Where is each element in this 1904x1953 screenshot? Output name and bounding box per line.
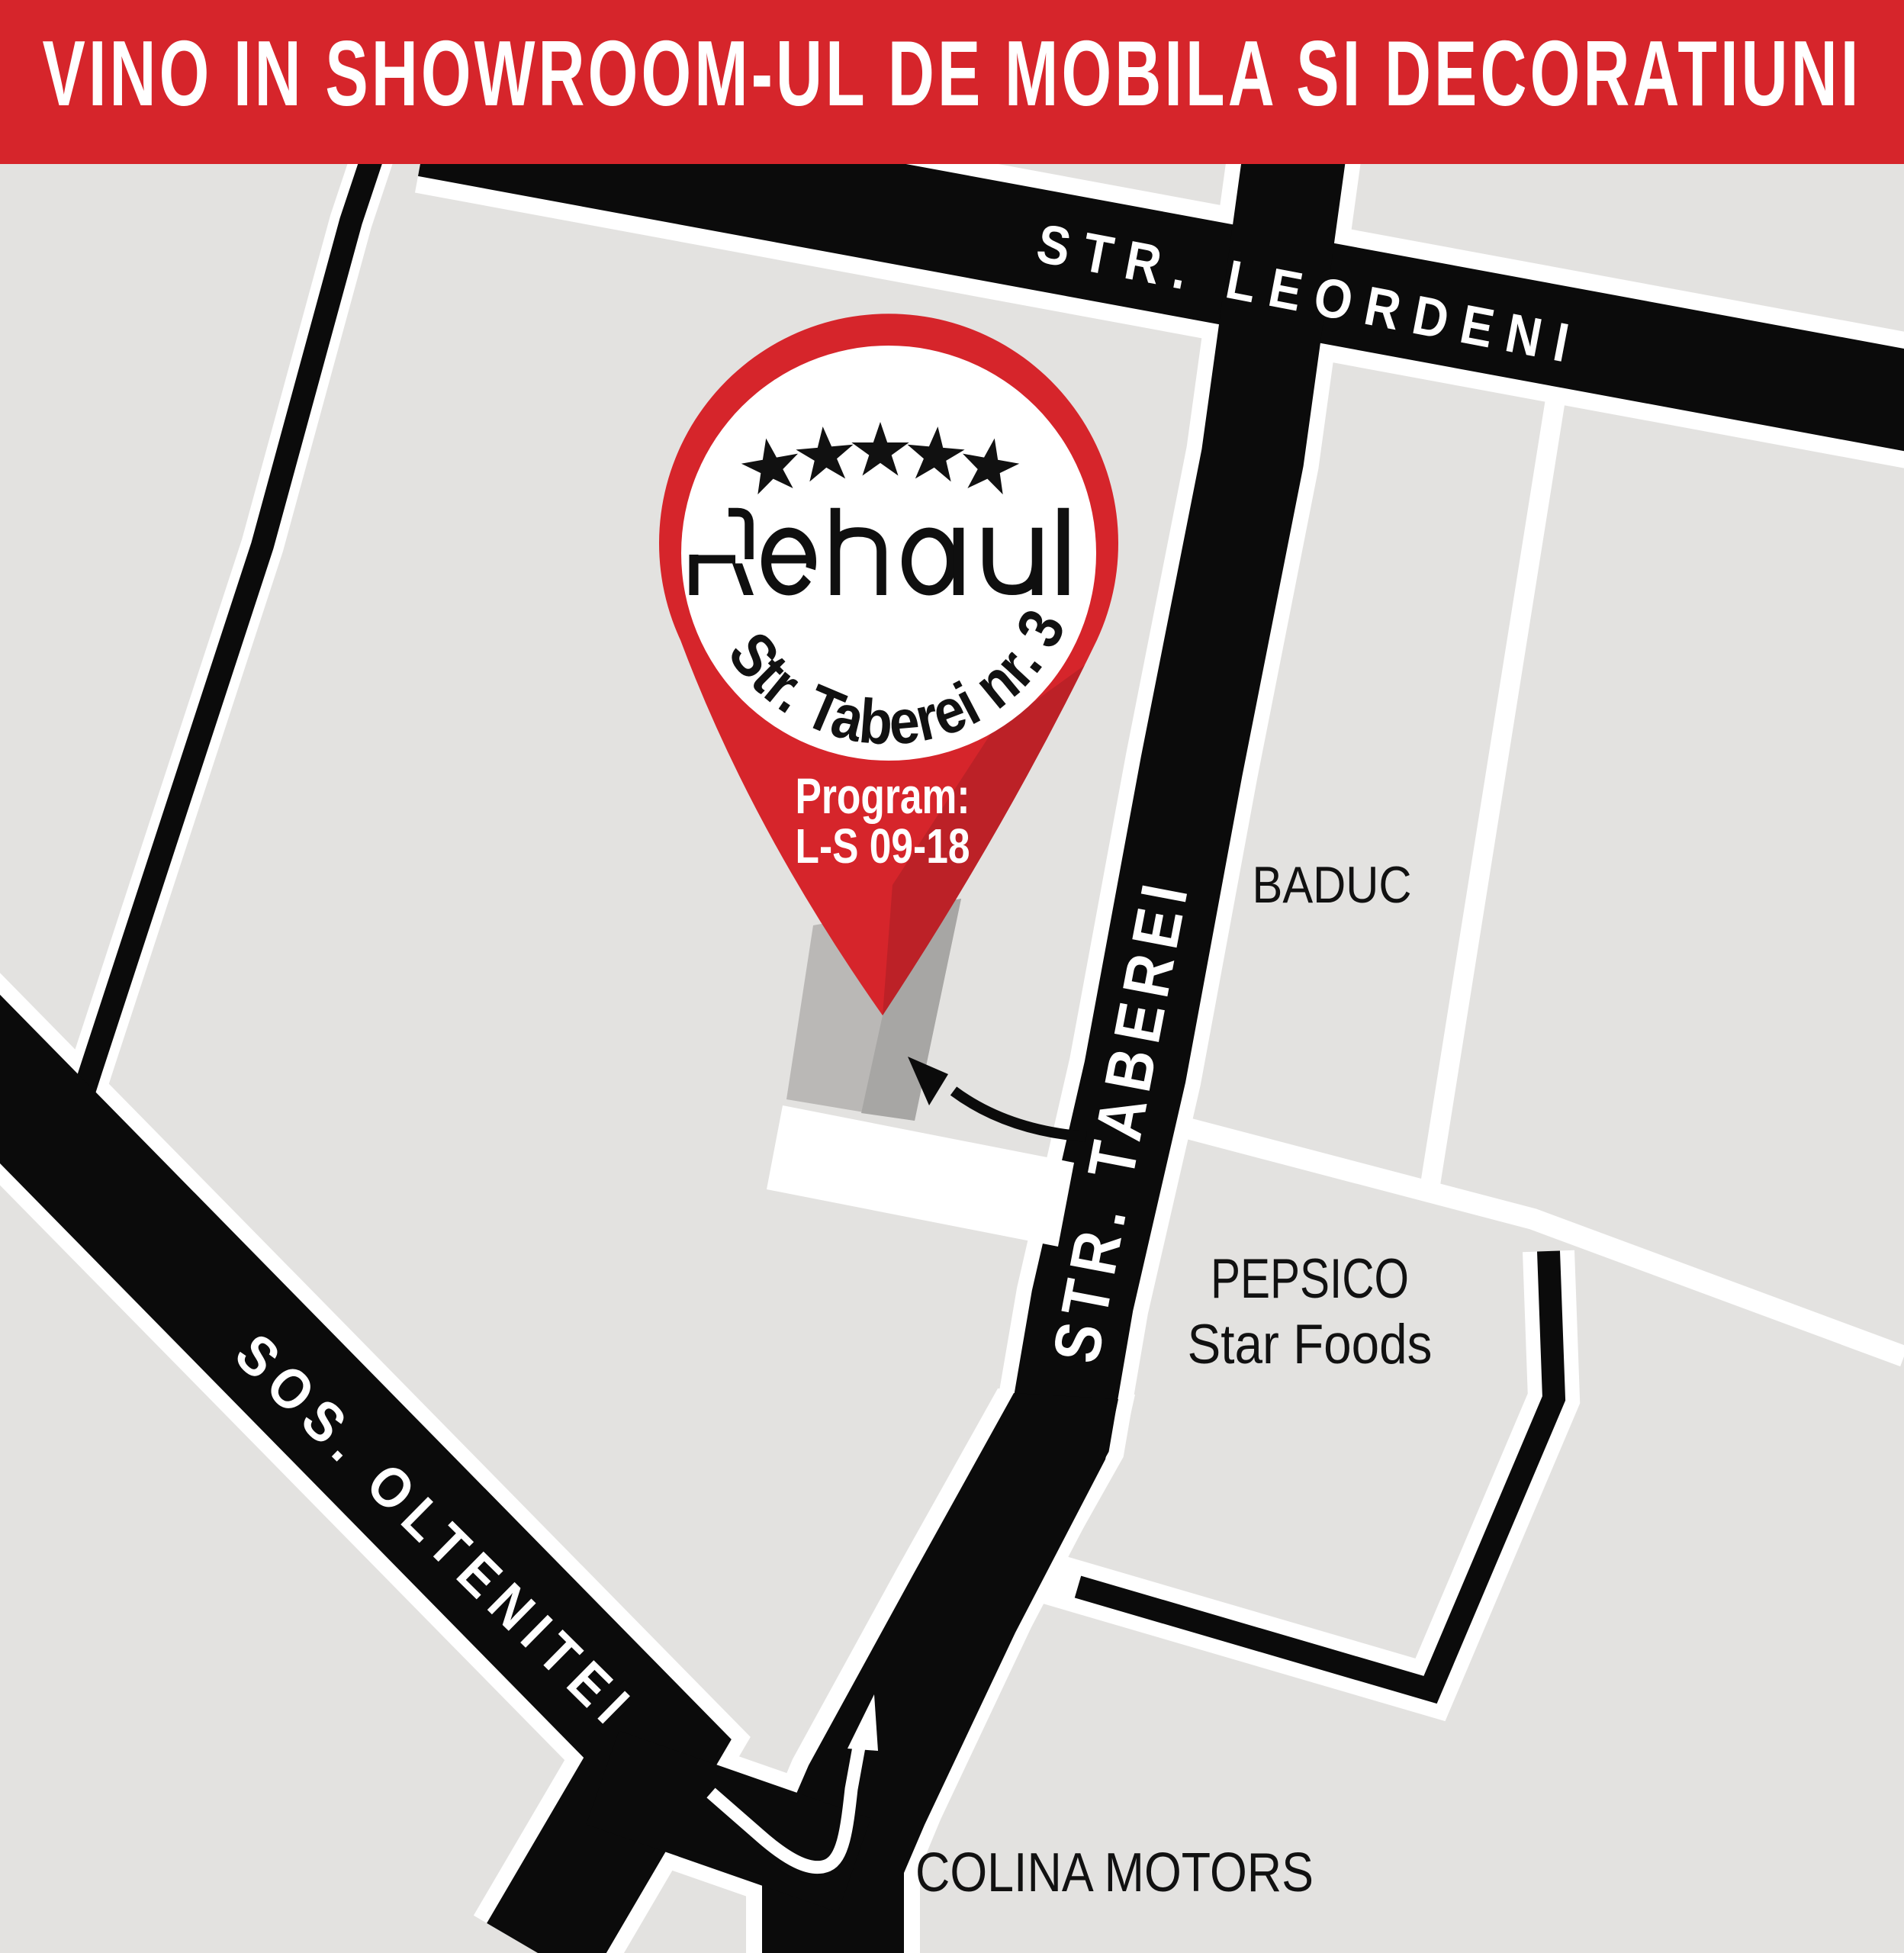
svg-text:L-S 09-18: L-S 09-18 [796, 819, 970, 874]
svg-text:Program:: Program: [796, 767, 970, 824]
svg-text:VINO IN SHOWROOM-UL DE MOBILA: VINO IN SHOWROOM-UL DE MOBILA SI DECORAT… [43, 21, 1862, 125]
svg-text:BADUC: BADUC [1253, 856, 1412, 914]
svg-text:Star Foods: Star Foods [1188, 1314, 1433, 1375]
svg-text:PEPSICO: PEPSICO [1211, 1248, 1409, 1310]
svg-text:COLINA MOTORS: COLINA MOTORS [915, 1842, 1314, 1903]
